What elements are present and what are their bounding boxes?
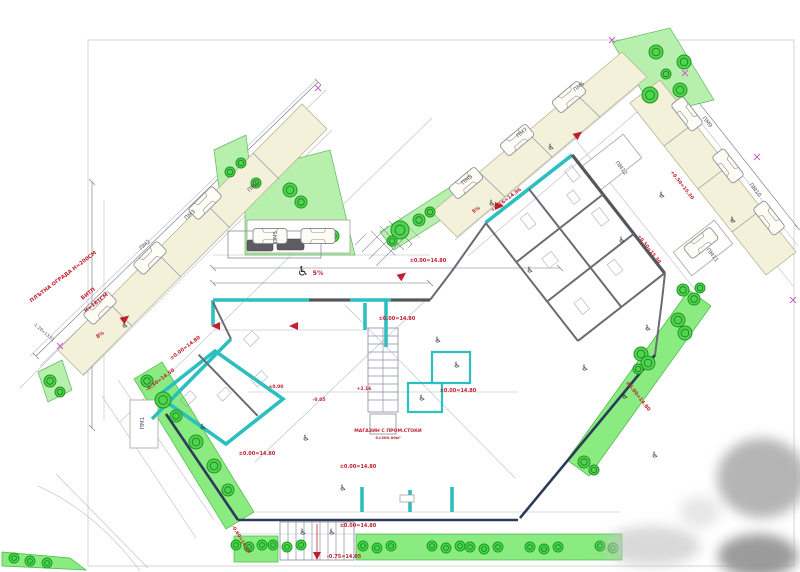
ramp-hatch [340, 186, 428, 290]
tree-icon [677, 284, 689, 296]
parking-label: ПМ1 [140, 417, 146, 429]
bush-icon [358, 541, 368, 551]
tree-icon [425, 207, 435, 217]
wheelchair-icon: ♿ [453, 361, 460, 370]
bush-icon [268, 540, 278, 550]
green-strip-east [567, 290, 711, 476]
tree-icon [578, 456, 590, 468]
wheelchair-icon: ♿ [618, 236, 625, 245]
survey-cross-icon [315, 85, 321, 91]
wheelchair-icon: ♿ [302, 434, 309, 443]
tree-icon [688, 293, 700, 305]
drawing-sheet: ♿♿♿♿♿♿♿♿♿♿♿♿♿♿♿♿♿♿♿♿ ПЛЪТНА ОГРАДА Н=200… [0, 0, 800, 572]
stair-core [368, 328, 398, 434]
level-mark: -0.75=14.05 [327, 554, 362, 560]
tree-icon [189, 435, 203, 449]
wheelchair-icon: ♿ [621, 392, 628, 401]
wheelchair-icon: ♿ [434, 336, 441, 345]
tree-icon [413, 214, 425, 226]
level-mark: ±0.00=14.80 [239, 451, 276, 457]
bush-icon [455, 541, 465, 551]
bush-icon [595, 541, 605, 551]
level-mark: ±0.00=14.80 [379, 316, 416, 322]
level-mark: ±0.00 [269, 384, 284, 390]
wheelchair-icon: ♿ [644, 324, 651, 333]
tree-icon [671, 313, 685, 327]
tree-icon [222, 484, 234, 496]
level-mark: ±0.00=14.80 [440, 388, 477, 394]
wheelchair-icon: ♿ [199, 423, 206, 432]
bush-icon [372, 543, 382, 553]
bush-icon [553, 542, 563, 552]
tree-icon [283, 183, 297, 197]
tree-icon [55, 387, 65, 397]
tree-icon [589, 465, 599, 475]
level-mark: ±0.00=14.80 [410, 258, 447, 264]
bush-icon [465, 542, 475, 552]
bush-icon [257, 540, 267, 550]
bush-icon [479, 544, 489, 554]
survey-cross-icon [790, 297, 796, 303]
parking-label: ПМ5 [273, 230, 279, 243]
bush-icon [296, 540, 306, 550]
level-mark: -0.05 [313, 397, 326, 403]
shop-label: МАГАЗИН С ПРОМ.СТОКИ [354, 428, 422, 434]
wheelchair-icon: ♿ [651, 451, 658, 460]
survey-level: -1.29=13.51 [32, 321, 55, 342]
bush-icon [427, 541, 437, 551]
wheelchair-icon: ♿ [658, 191, 665, 200]
car-icon [253, 229, 287, 244]
bush-icon [441, 543, 451, 553]
tree-icon [170, 410, 182, 422]
tree-icon [225, 167, 235, 177]
slope-label: 5% [312, 269, 324, 277]
wheelchair-icon: ♿ [729, 216, 736, 225]
car-icon [301, 229, 335, 244]
tree-icon [236, 158, 246, 168]
bush-icon [493, 542, 503, 552]
site-plan-svg: ♿♿♿♿♿♿♿♿♿♿♿♿♿♿♿♿♿♿♿♿ ПЛЪТНА ОГРАДА Н=200… [0, 0, 800, 572]
tree-icon [44, 375, 56, 387]
tree-icon [678, 326, 692, 340]
entrance-arrow-icon [289, 322, 298, 330]
tree-icon [295, 196, 307, 208]
tree-icon [642, 87, 658, 103]
tree-icon [677, 55, 691, 69]
level-mark: ±0.00=14.80 [340, 523, 377, 529]
level-mark: +0.50=15.30 [636, 234, 663, 266]
tree-icon [155, 392, 171, 408]
blurred-watermark [604, 438, 800, 572]
wheelchair-icon: ♿ [547, 143, 554, 152]
bush-icon [282, 542, 292, 552]
bush-icon [525, 542, 535, 552]
shop-area: S=300.00м² [375, 435, 401, 440]
wheelchair-icon: ♿ [339, 484, 346, 493]
wheelchair-icon: ♿ [418, 394, 425, 403]
tree-icon [661, 69, 671, 79]
wheelchair-icon: ♿ [526, 266, 533, 275]
bush-icon [539, 544, 549, 554]
wheelchair-icon: ♿ [328, 528, 335, 537]
front-niche [400, 495, 414, 502]
bush-icon [386, 541, 396, 551]
level-mark: ±0.00=14.80 [340, 464, 377, 470]
entrance-arrow-icon [397, 269, 409, 281]
wheelchair-icon: ♿ [299, 528, 306, 537]
tree-icon [633, 364, 643, 374]
tree-icon [673, 83, 687, 97]
level-mark: +2.16 [357, 386, 372, 392]
tree-icon [387, 236, 397, 246]
wheelchair-icon: ♿ [581, 364, 588, 373]
bush-icon [9, 553, 19, 563]
tree-icon [207, 459, 221, 473]
level-mark: ±0.00=14.80 [169, 334, 202, 361]
tree-icon [649, 45, 663, 59]
tree-icon [695, 283, 705, 293]
wheelchair-icon: ♿ [297, 265, 309, 280]
bush-icon [42, 558, 52, 568]
survey-cross-icon [754, 154, 760, 160]
bush-icon [25, 556, 35, 566]
